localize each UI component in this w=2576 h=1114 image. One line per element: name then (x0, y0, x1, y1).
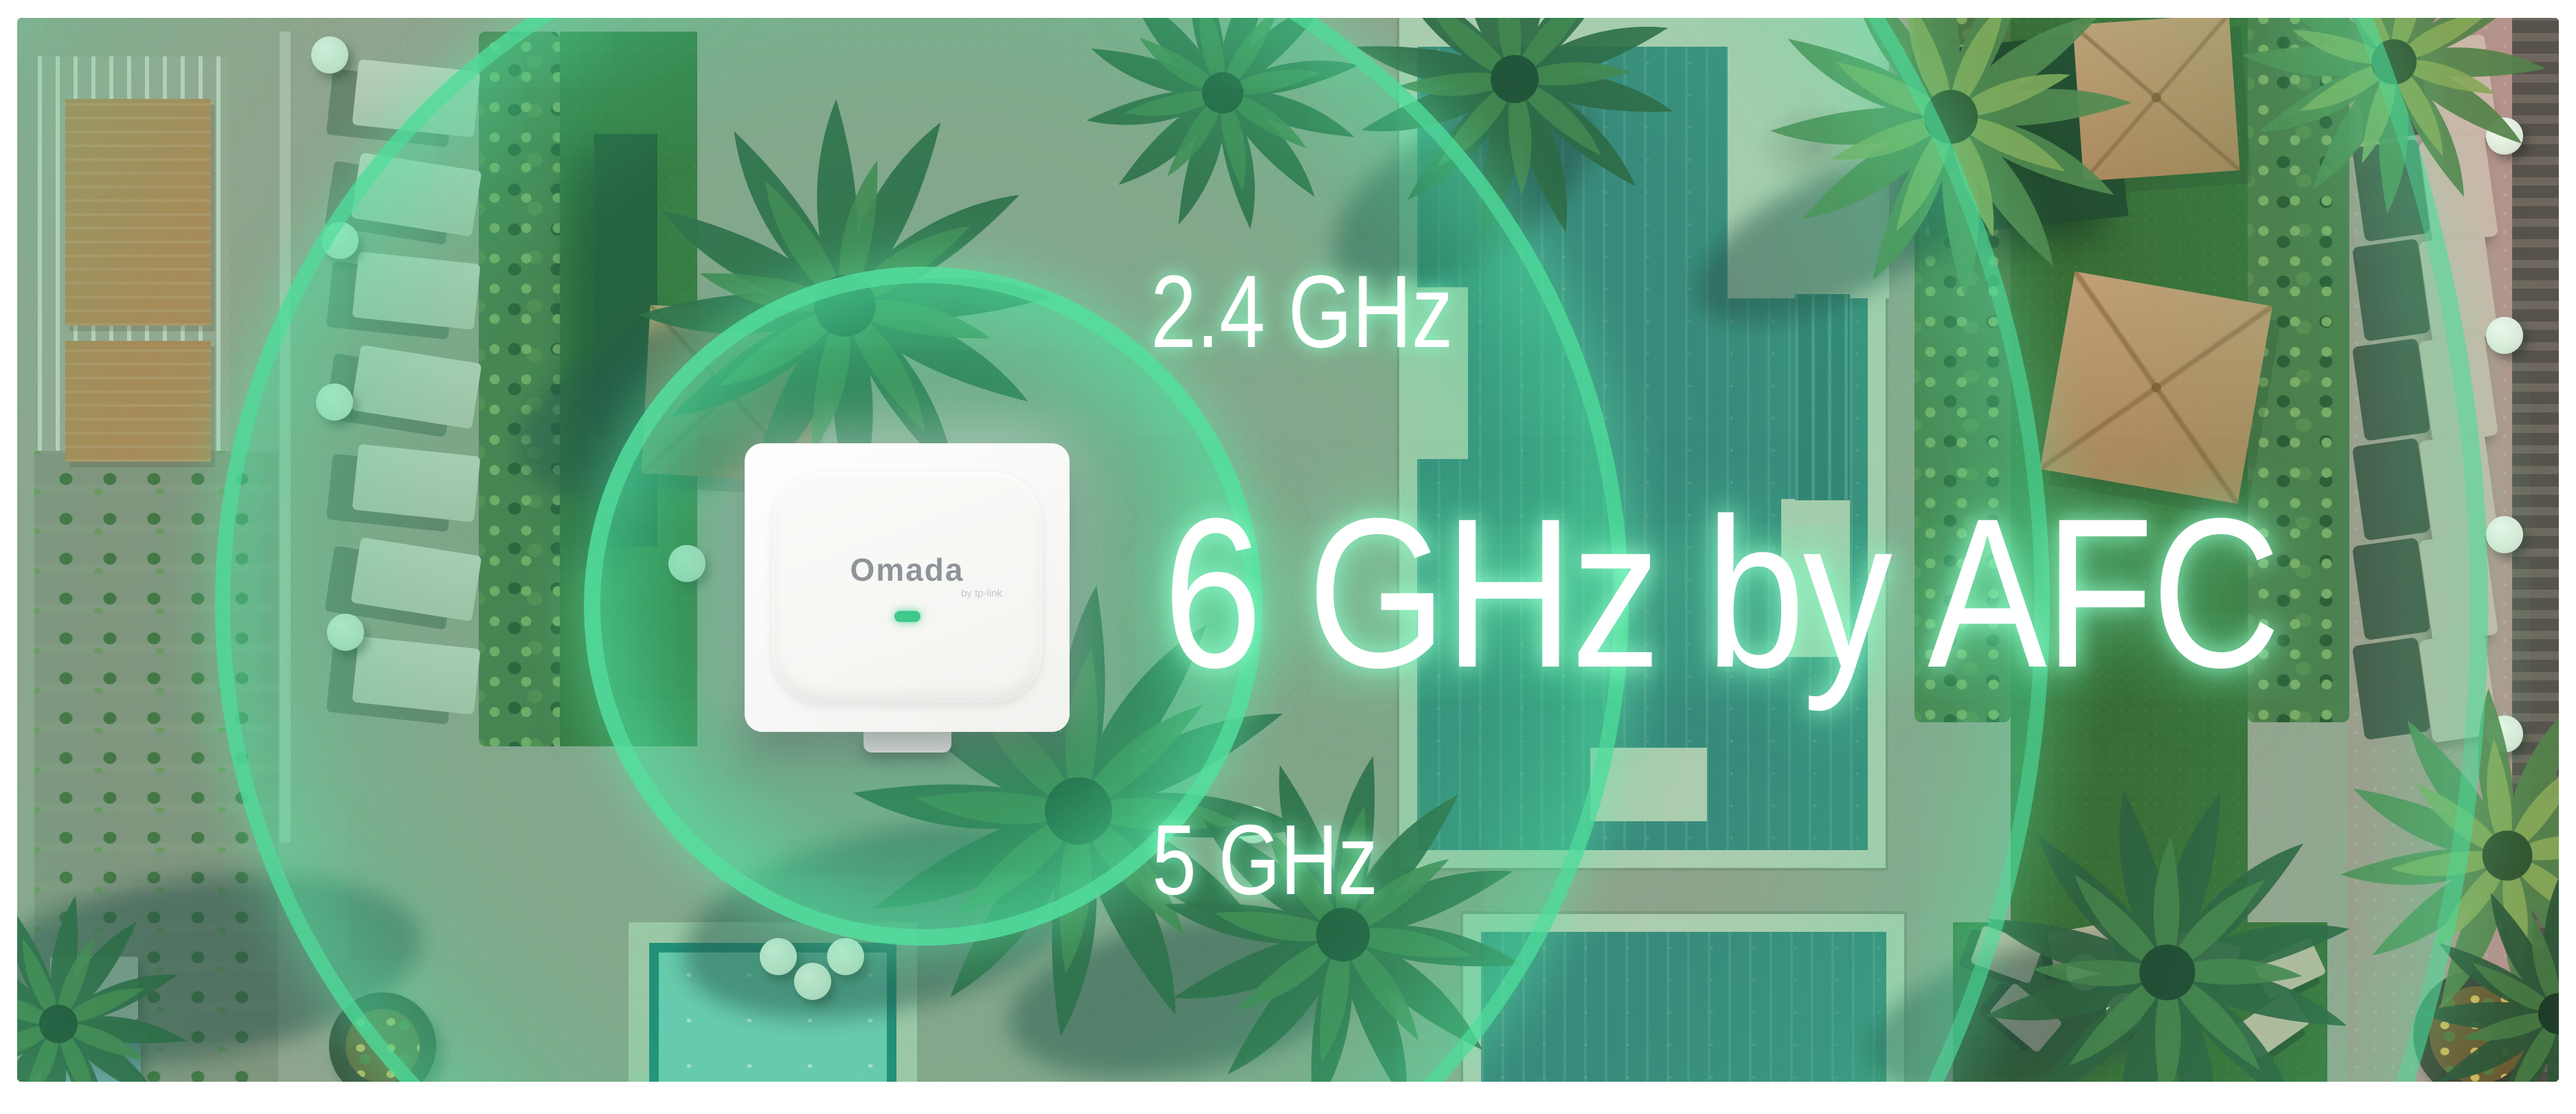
side-table (2486, 516, 2523, 553)
omada-logo: Omada (850, 554, 964, 586)
resort-aerial-photo: Omada by tp-link 2.4 GHz 6 GHz by AFC 5 … (17, 18, 2559, 1082)
device-mount-tab (863, 731, 951, 753)
access-point-device: Omada by tp-link (745, 443, 1070, 732)
band-label-2-4ghz: 2.4 GHz (1151, 260, 1453, 363)
marketing-banner: Omada by tp-link 2.4 GHz 6 GHz by AFC 5 … (0, 0, 2576, 1114)
tp-link-sub-logo: by tp-link (961, 588, 1002, 599)
device-front-panel: Omada by tp-link (772, 472, 1042, 703)
band-label-6ghz-afc: 6 GHz by AFC (1163, 487, 2279, 700)
band-label-5ghz: 5 GHz (1152, 810, 1378, 910)
side-table (2486, 317, 2523, 354)
status-led (894, 611, 920, 622)
